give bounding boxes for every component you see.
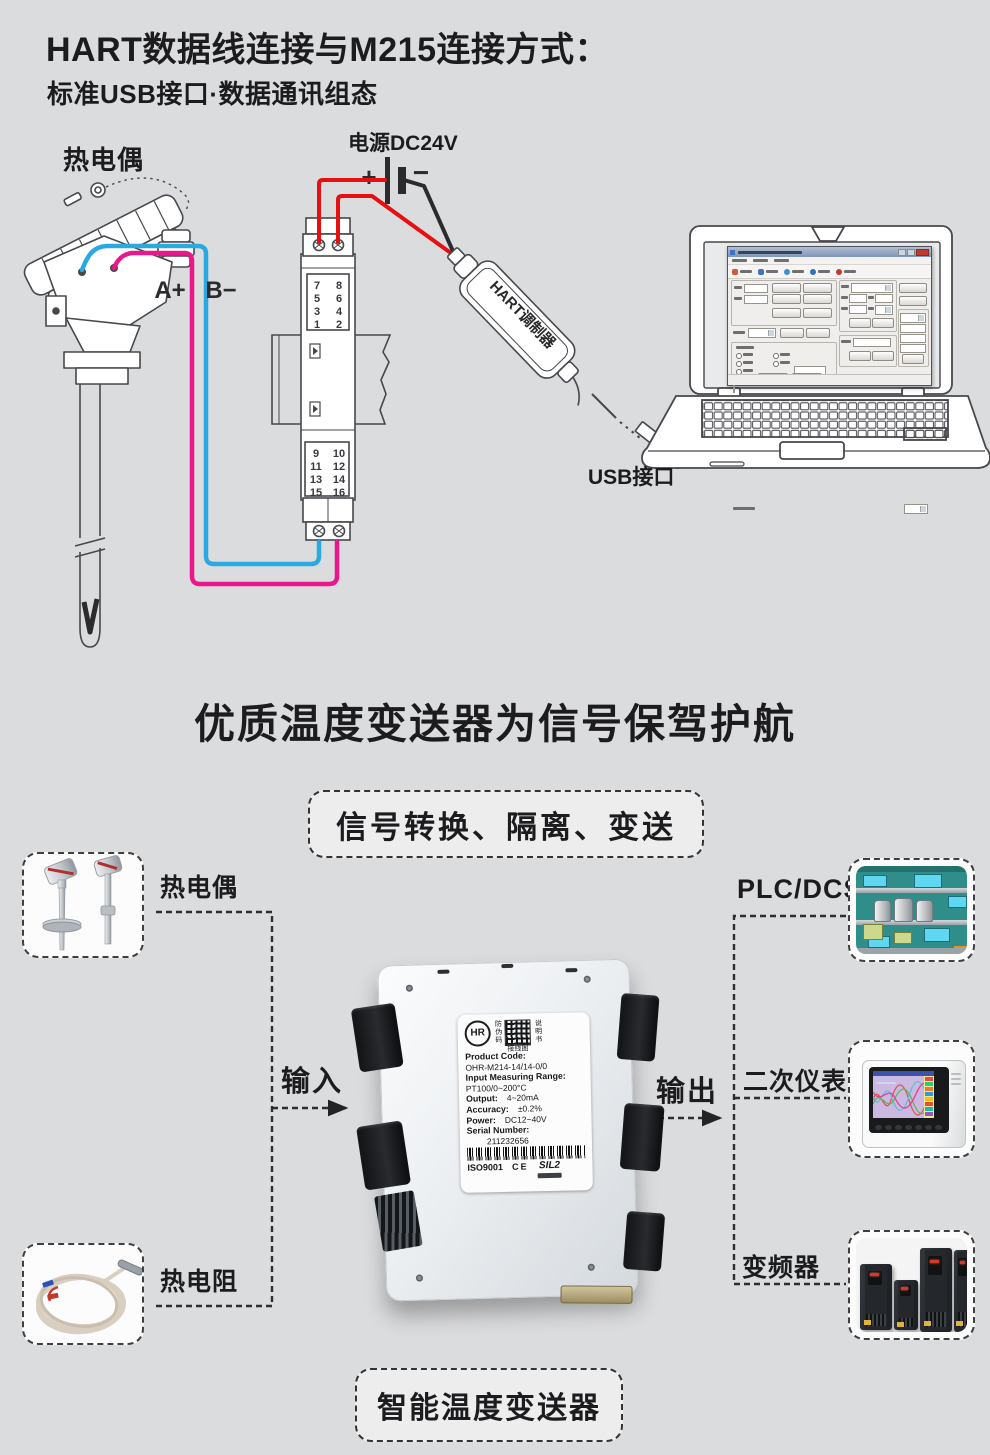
product-module-photo: HR 防伪码 接线图 说明书 Product Code: OHR-M214-14… bbox=[351, 946, 667, 1322]
ce-badge: CE bbox=[512, 1162, 529, 1173]
svg-text:4: 4 bbox=[336, 306, 343, 318]
plus-sign: + bbox=[361, 162, 376, 192]
window-close-button bbox=[916, 249, 929, 256]
svg-text:13: 13 bbox=[310, 474, 322, 486]
window-menu-bar bbox=[728, 257, 931, 265]
serial-value: 211232656 bbox=[487, 1134, 585, 1147]
svg-text:12: 12 bbox=[333, 461, 345, 473]
svg-text:15: 15 bbox=[310, 487, 322, 499]
manual-label: 说明书 bbox=[533, 1019, 542, 1043]
svg-text:11: 11 bbox=[310, 461, 322, 473]
input-label: 输入 bbox=[281, 1058, 343, 1100]
iso-badge: ISO9001 bbox=[467, 1162, 503, 1173]
svg-text:6: 6 bbox=[336, 293, 342, 305]
page-subtitle: 标准USB接口·数据通讯组态 bbox=[47, 74, 378, 111]
range-label: Input Measuring Range: bbox=[465, 1071, 565, 1083]
window-minimize-button bbox=[898, 249, 906, 256]
config-software-window bbox=[727, 246, 932, 386]
barcode bbox=[467, 1146, 585, 1161]
output-label: 输出 bbox=[656, 1068, 718, 1110]
window-toolbar bbox=[728, 265, 931, 279]
poster-page: 78 56 34 12 910 1112 1314 1516 + − A+ B− bbox=[0, 0, 990, 1455]
flow-label-secondary-instrument: 二次仪表 bbox=[743, 1062, 847, 1098]
svg-text:9: 9 bbox=[313, 448, 319, 460]
svg-text:14: 14 bbox=[333, 474, 346, 486]
window-status-bar bbox=[728, 374, 931, 385]
antifake-label: 防伪码 bbox=[493, 1020, 502, 1044]
page-title: HART数据线连接与M215连接方式： bbox=[46, 22, 609, 71]
product-label: HR 防伪码 接线图 说明书 Product Code: OHR-M214-14… bbox=[457, 1012, 593, 1193]
slogan-heading: 优质温度变送器为信号保驾护航 bbox=[0, 690, 990, 750]
terminal-b-minus-label: B− bbox=[205, 277, 236, 304]
thermocouple-drawing bbox=[21, 178, 198, 647]
output-spec-label: Output: bbox=[466, 1093, 498, 1104]
inverter-art bbox=[856, 1238, 967, 1332]
svg-text:2: 2 bbox=[336, 319, 342, 331]
svg-text:7: 7 bbox=[314, 280, 320, 292]
photo-rtd bbox=[22, 1243, 144, 1345]
photo-plc-dcs bbox=[848, 858, 975, 962]
power-spec-label: Power: bbox=[466, 1115, 496, 1126]
output-spec-value: 4~20mA bbox=[507, 1093, 539, 1104]
window-title-bar bbox=[728, 247, 931, 257]
flow-label-plc-dcs: PLC/DCS bbox=[737, 874, 863, 905]
module-connector bbox=[620, 1103, 665, 1172]
svg-text:8: 8 bbox=[336, 280, 342, 292]
module-connector bbox=[623, 1211, 665, 1272]
sil-badge: SIL2 bbox=[539, 1161, 560, 1172]
terminal-a-plus-label: A+ bbox=[154, 277, 185, 304]
din-clip bbox=[560, 1285, 632, 1304]
scada-screen-art bbox=[856, 866, 967, 954]
photo-recorder bbox=[848, 1040, 975, 1158]
window-maximize-button bbox=[907, 249, 915, 256]
brand-logo: HR bbox=[464, 1020, 491, 1047]
smart-transmitter-banner: 智能温度变送器 bbox=[355, 1368, 623, 1442]
usb-port-label: USB接口 bbox=[588, 461, 674, 491]
window-app-icon bbox=[730, 250, 735, 255]
thermocouple-photo-art bbox=[24, 854, 142, 956]
svg-text:16: 16 bbox=[333, 487, 345, 499]
rtd-photo-art bbox=[24, 1245, 142, 1343]
flow-label-rtd: 热电阻 bbox=[160, 1262, 238, 1298]
svg-text:1: 1 bbox=[314, 319, 320, 331]
photo-thermocouple bbox=[22, 852, 144, 958]
module-connector bbox=[356, 1120, 411, 1190]
svg-text:3: 3 bbox=[314, 306, 320, 318]
module-connector bbox=[617, 993, 660, 1062]
product-code-label: Product Code: bbox=[465, 1051, 526, 1062]
photo-inverter bbox=[848, 1230, 975, 1340]
serial-label: Serial Number: bbox=[467, 1125, 530, 1136]
module-connector bbox=[351, 1003, 404, 1073]
qr-code bbox=[504, 1019, 531, 1046]
recorder-art bbox=[862, 1060, 966, 1148]
accuracy-label: Accuracy: bbox=[466, 1104, 509, 1115]
flow-label-thermocouple: 热电偶 bbox=[160, 868, 238, 904]
svg-text:10: 10 bbox=[333, 448, 345, 460]
svg-text:5: 5 bbox=[314, 293, 320, 305]
flow-label-inverter: 变频器 bbox=[742, 1248, 820, 1284]
accuracy-value: ±0.2% bbox=[518, 1103, 542, 1114]
sil-cert-strip bbox=[538, 1173, 562, 1179]
signal-banner: 信号转换、隔离、变送 bbox=[308, 790, 704, 858]
power-supply-label: 电源DC24V bbox=[348, 127, 458, 157]
thermocouple-label: 热电偶 bbox=[63, 140, 144, 177]
hart-modulator-drawing: HART调制器 bbox=[435, 236, 640, 438]
power-spec-value: DC12~40V bbox=[505, 1114, 547, 1125]
